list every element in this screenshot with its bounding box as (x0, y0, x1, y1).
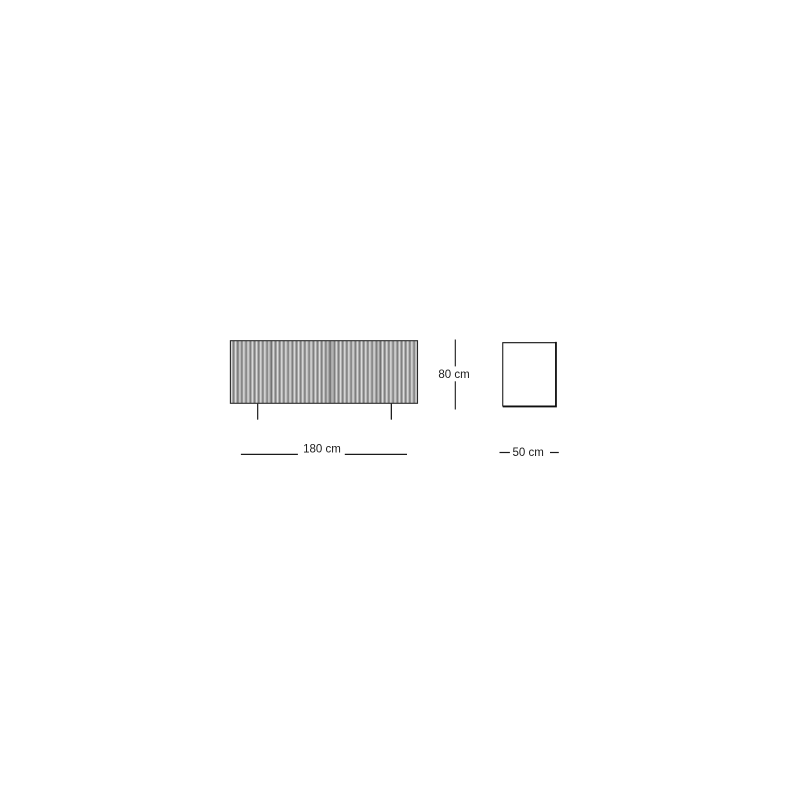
svg-text:50 cm: 50 cm (513, 447, 544, 459)
svg-text:80 cm: 80 cm (438, 369, 469, 381)
svg-text:180 cm: 180 cm (303, 444, 341, 456)
